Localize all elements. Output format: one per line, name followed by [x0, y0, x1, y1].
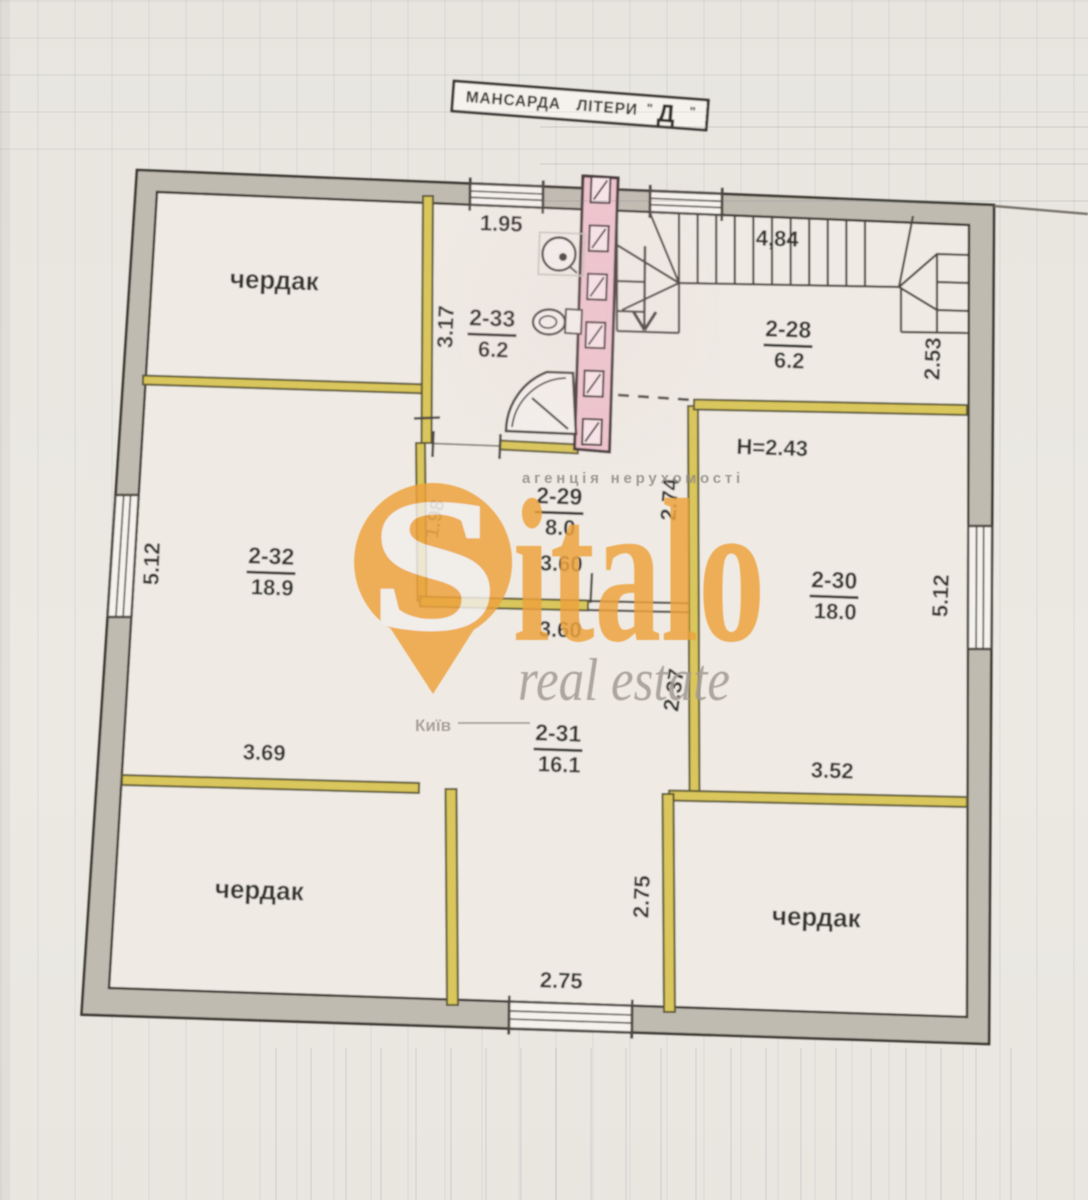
svg-text:чердак: чердак [771, 901, 862, 934]
svg-text:real estate: real estate [518, 647, 730, 713]
svg-text:2.75: 2.75 [628, 875, 654, 919]
svg-text:18.0: 18.0 [813, 598, 857, 624]
svg-text:16.1: 16.1 [537, 751, 581, 777]
svg-text:2-31: 2-31 [535, 719, 582, 747]
svg-text:чердак: чердак [229, 264, 320, 297]
svg-text:2-28: 2-28 [765, 315, 812, 343]
svg-text:2-30: 2-30 [811, 566, 858, 594]
svg-text:2-32: 2-32 [248, 542, 295, 570]
svg-text:6.2: 6.2 [774, 348, 805, 374]
svg-text:Київ: Київ [415, 716, 451, 735]
svg-text:2.53: 2.53 [919, 337, 945, 381]
svg-text:3.69: 3.69 [242, 739, 286, 765]
svg-text:3.52: 3.52 [810, 757, 854, 783]
svg-text:чердак: чердак [214, 874, 305, 907]
svg-text:4,84: 4,84 [755, 225, 799, 251]
svg-text:5.12: 5.12 [138, 542, 164, 586]
svg-text:18.9: 18.9 [250, 574, 294, 600]
svg-text:2.75: 2.75 [539, 967, 583, 993]
svg-text:5.12: 5.12 [927, 574, 953, 618]
svg-text:S: S [370, 461, 498, 669]
